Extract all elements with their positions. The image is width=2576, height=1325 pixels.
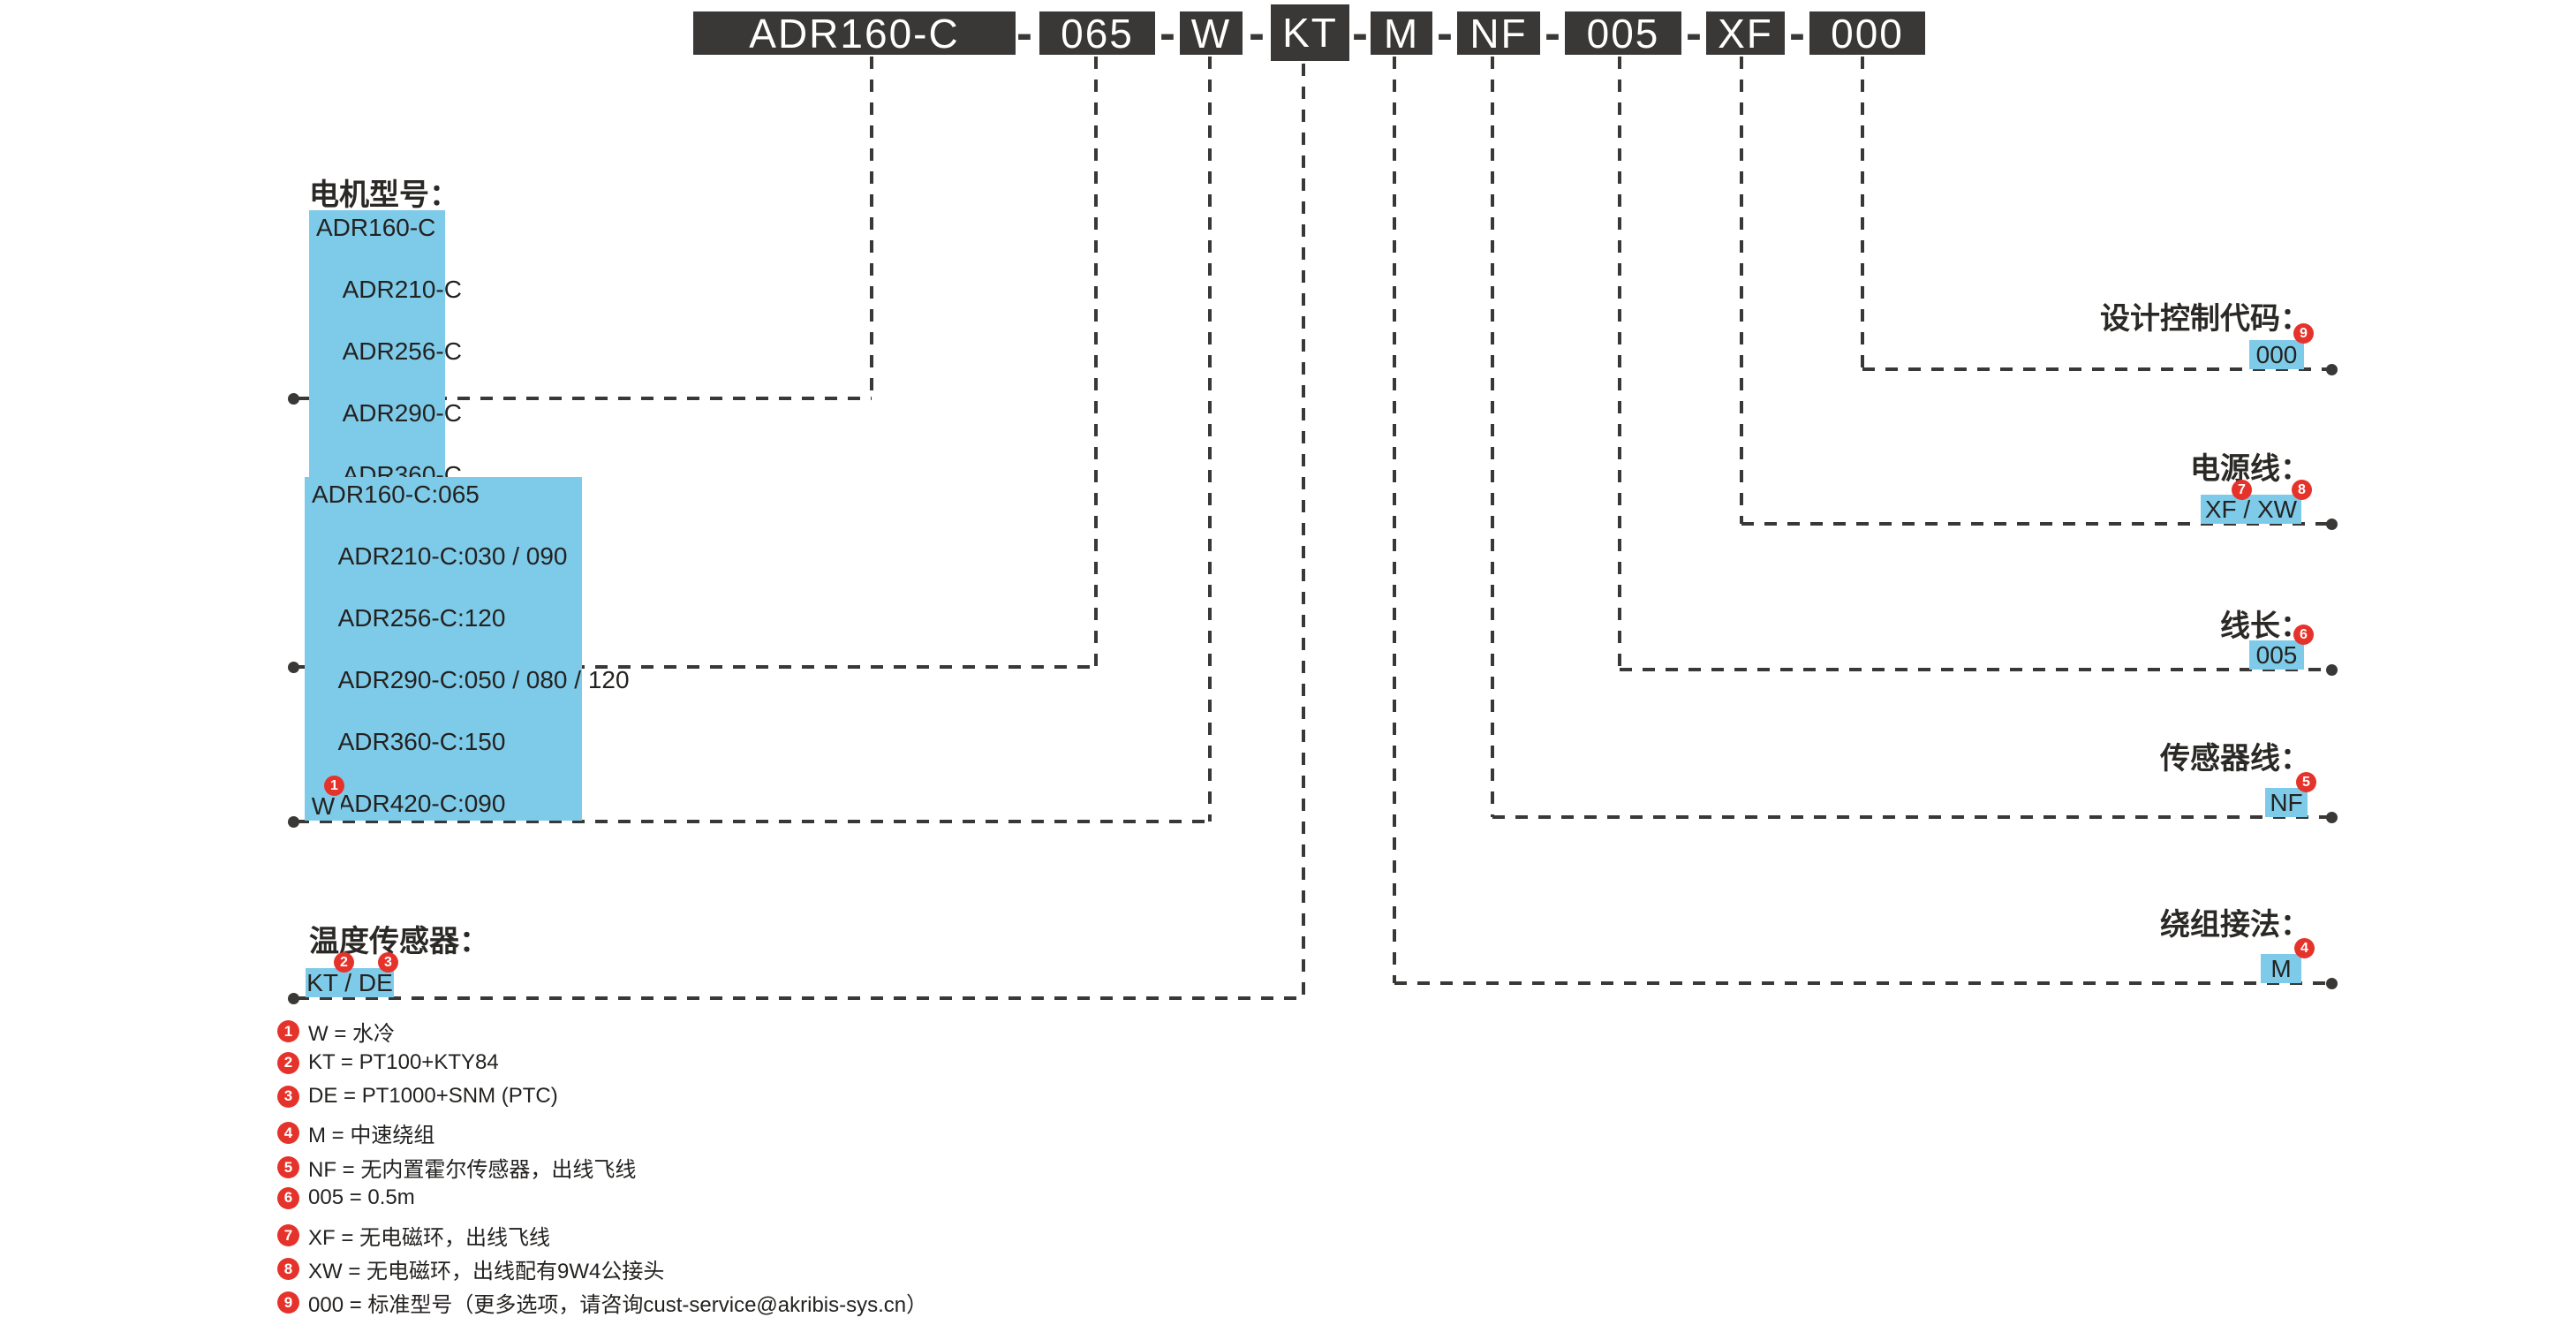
legend-item: 3 DE = PT1000+SNM (PTC) (277, 1084, 558, 1109)
code-segment-cooling: W (1180, 11, 1243, 55)
legend-text: KT = PT100+KTY84 (308, 1050, 499, 1075)
badge-8: 8 (2292, 480, 2312, 500)
legend-text: XF = 无电磁环，出线飞线 (308, 1220, 550, 1251)
connector-horizontal-sensor-cable (1492, 815, 2328, 819)
sensor-cable-label: 传感器线： (1939, 734, 2310, 777)
core-height-list: ADR160-C:065 ADR210-C:030 / 090 ADR256-C… (305, 477, 582, 821)
design-code-value: 000 (2249, 340, 2304, 369)
legend-text: W = 水冷 (308, 1016, 395, 1047)
connector-vertical-sensor-cable (1491, 57, 1494, 817)
legend-item: 6 005 = 0.5m (277, 1185, 415, 1210)
code-separator: - (1249, 11, 1265, 55)
design-code-label: 设计控制代码： (1939, 294, 2310, 337)
sensor-cable-value: NF (2265, 788, 2308, 817)
connector-dot (2326, 519, 2338, 530)
connector-dot (288, 393, 299, 405)
core-height-item: ADR210-C:030 / 090 (338, 542, 568, 570)
legend-item: 8 XW = 无电磁环，出线配有9W4公接头 (277, 1253, 664, 1284)
motor-model-label: 电机型号： (309, 170, 459, 214)
code-separator: - (1352, 11, 1368, 55)
connector-horizontal-temp-sensor (297, 996, 1303, 1000)
connector-vertical-power-cable (1740, 57, 1743, 524)
legend-badge-8: 8 (277, 1258, 299, 1280)
legend-badge-5: 5 (277, 1156, 299, 1178)
connector-vertical-cable-length (1618, 57, 1621, 670)
motor-model-item: ADR290-C (343, 399, 462, 427)
legend-item: 1 W = 水冷 (277, 1016, 395, 1047)
winding-value: M (2261, 954, 2301, 983)
badge-6: 6 (2293, 625, 2314, 645)
code-separator: - (1789, 11, 1805, 55)
core-height-item: ADR256-C:120 (338, 604, 506, 632)
connector-vertical-motor-model (870, 57, 873, 398)
badge-3: 3 (378, 952, 398, 973)
badge-5: 5 (2296, 772, 2316, 792)
legend-badge-7: 7 (277, 1224, 299, 1246)
code-segment-cable-length: 005 (1565, 11, 1681, 55)
motor-model-item: ADR160-C (316, 214, 435, 241)
badge-9: 9 (2293, 323, 2314, 344)
connector-vertical-design-code (1861, 57, 1864, 369)
code-segment-sensor-cable: NF (1457, 11, 1540, 55)
badge-7: 7 (2232, 480, 2252, 500)
code-separator: - (1437, 11, 1453, 55)
model-code-diagram: ADR160-C - 065 - W - KT - M - NF - 005 -… (0, 0, 2576, 1325)
legend-badge-4: 4 (277, 1122, 299, 1144)
legend-item: 5 NF = 无内置霍尔传感器，出线飞线 (277, 1152, 636, 1183)
legend-item: 2 KT = PT100+KTY84 (277, 1050, 499, 1075)
connector-vertical-winding (1393, 57, 1396, 983)
legend-text: 000 = 标准型号（更多选项，请咨询cust-service@akribis-… (308, 1287, 927, 1318)
connector-dot (2326, 812, 2338, 823)
core-height-item: ADR360-C:150 (338, 728, 506, 755)
connector-dot (288, 662, 299, 673)
code-segment-temp-sensor: KT (1271, 4, 1349, 61)
power-cable-value: XF / XW (2201, 495, 2301, 524)
connector-vertical-cooling (1208, 57, 1212, 821)
core-height-item: ADR420-C:090 (338, 790, 506, 817)
legend-item: 9 000 = 标准型号（更多选项，请咨询cust-service@akribi… (277, 1287, 927, 1318)
code-segment-power-cable: XF (1706, 11, 1785, 55)
legend-badge-2: 2 (277, 1052, 299, 1074)
power-cable-label: 电源线： (1939, 444, 2310, 488)
code-segment-winding: M (1371, 11, 1432, 55)
core-height-item: ADR290-C:050 / 080 / 120 (338, 666, 630, 693)
code-separator: - (1686, 11, 1702, 55)
badge-2: 2 (334, 952, 354, 973)
temp-sensor-label: 温度传感器： (309, 917, 489, 960)
legend-text: 005 = 0.5m (308, 1185, 415, 1210)
code-separator: - (1545, 11, 1560, 55)
code-separator: - (1016, 11, 1032, 55)
code-segment-design-code: 000 (1809, 11, 1925, 55)
connector-dot (2326, 978, 2338, 989)
connector-dot (2326, 664, 2338, 676)
motor-model-item: ADR256-C (343, 337, 462, 365)
winding-label: 绕组接法： (1939, 900, 2310, 943)
code-separator: - (1160, 11, 1175, 55)
core-height-item: ADR160-C:065 (312, 481, 480, 508)
legend-item: 4 M = 中速绕组 (277, 1117, 434, 1148)
connector-dot (2326, 364, 2338, 375)
motor-model-item: ADR210-C (343, 276, 462, 303)
cable-length-label: 线长： (1939, 602, 2310, 645)
temp-sensor-value: KT / DE (306, 968, 394, 997)
connector-horizontal-winding (1394, 981, 2328, 985)
legend-text: NF = 无内置霍尔传感器，出线飞线 (308, 1152, 636, 1183)
legend-badge-6: 6 (277, 1187, 299, 1209)
badge-4: 4 (2294, 938, 2315, 958)
connector-dot (288, 993, 299, 1004)
legend-badge-9: 9 (277, 1291, 299, 1314)
legend-badge-3: 3 (277, 1086, 299, 1108)
connector-vertical-core-height (1094, 57, 1098, 667)
badge-1: 1 (324, 776, 344, 796)
cooling-value: W (306, 791, 341, 821)
legend-text: XW = 无电磁环，出线配有9W4公接头 (308, 1253, 664, 1284)
connector-horizontal-cable-length (1620, 668, 2328, 671)
legend-text: M = 中速绕组 (308, 1117, 434, 1148)
legend-badge-1: 1 (277, 1020, 299, 1042)
legend-item: 7 XF = 无电磁环，出线飞线 (277, 1220, 550, 1251)
connector-vertical-temp-sensor (1302, 64, 1305, 998)
code-segment-core-height: 065 (1039, 11, 1155, 55)
cable-length-value: 005 (2249, 640, 2304, 670)
legend-text: DE = PT1000+SNM (PTC) (308, 1084, 558, 1109)
connector-dot (288, 816, 299, 828)
code-segment-motor-model: ADR160-C (693, 11, 1016, 55)
